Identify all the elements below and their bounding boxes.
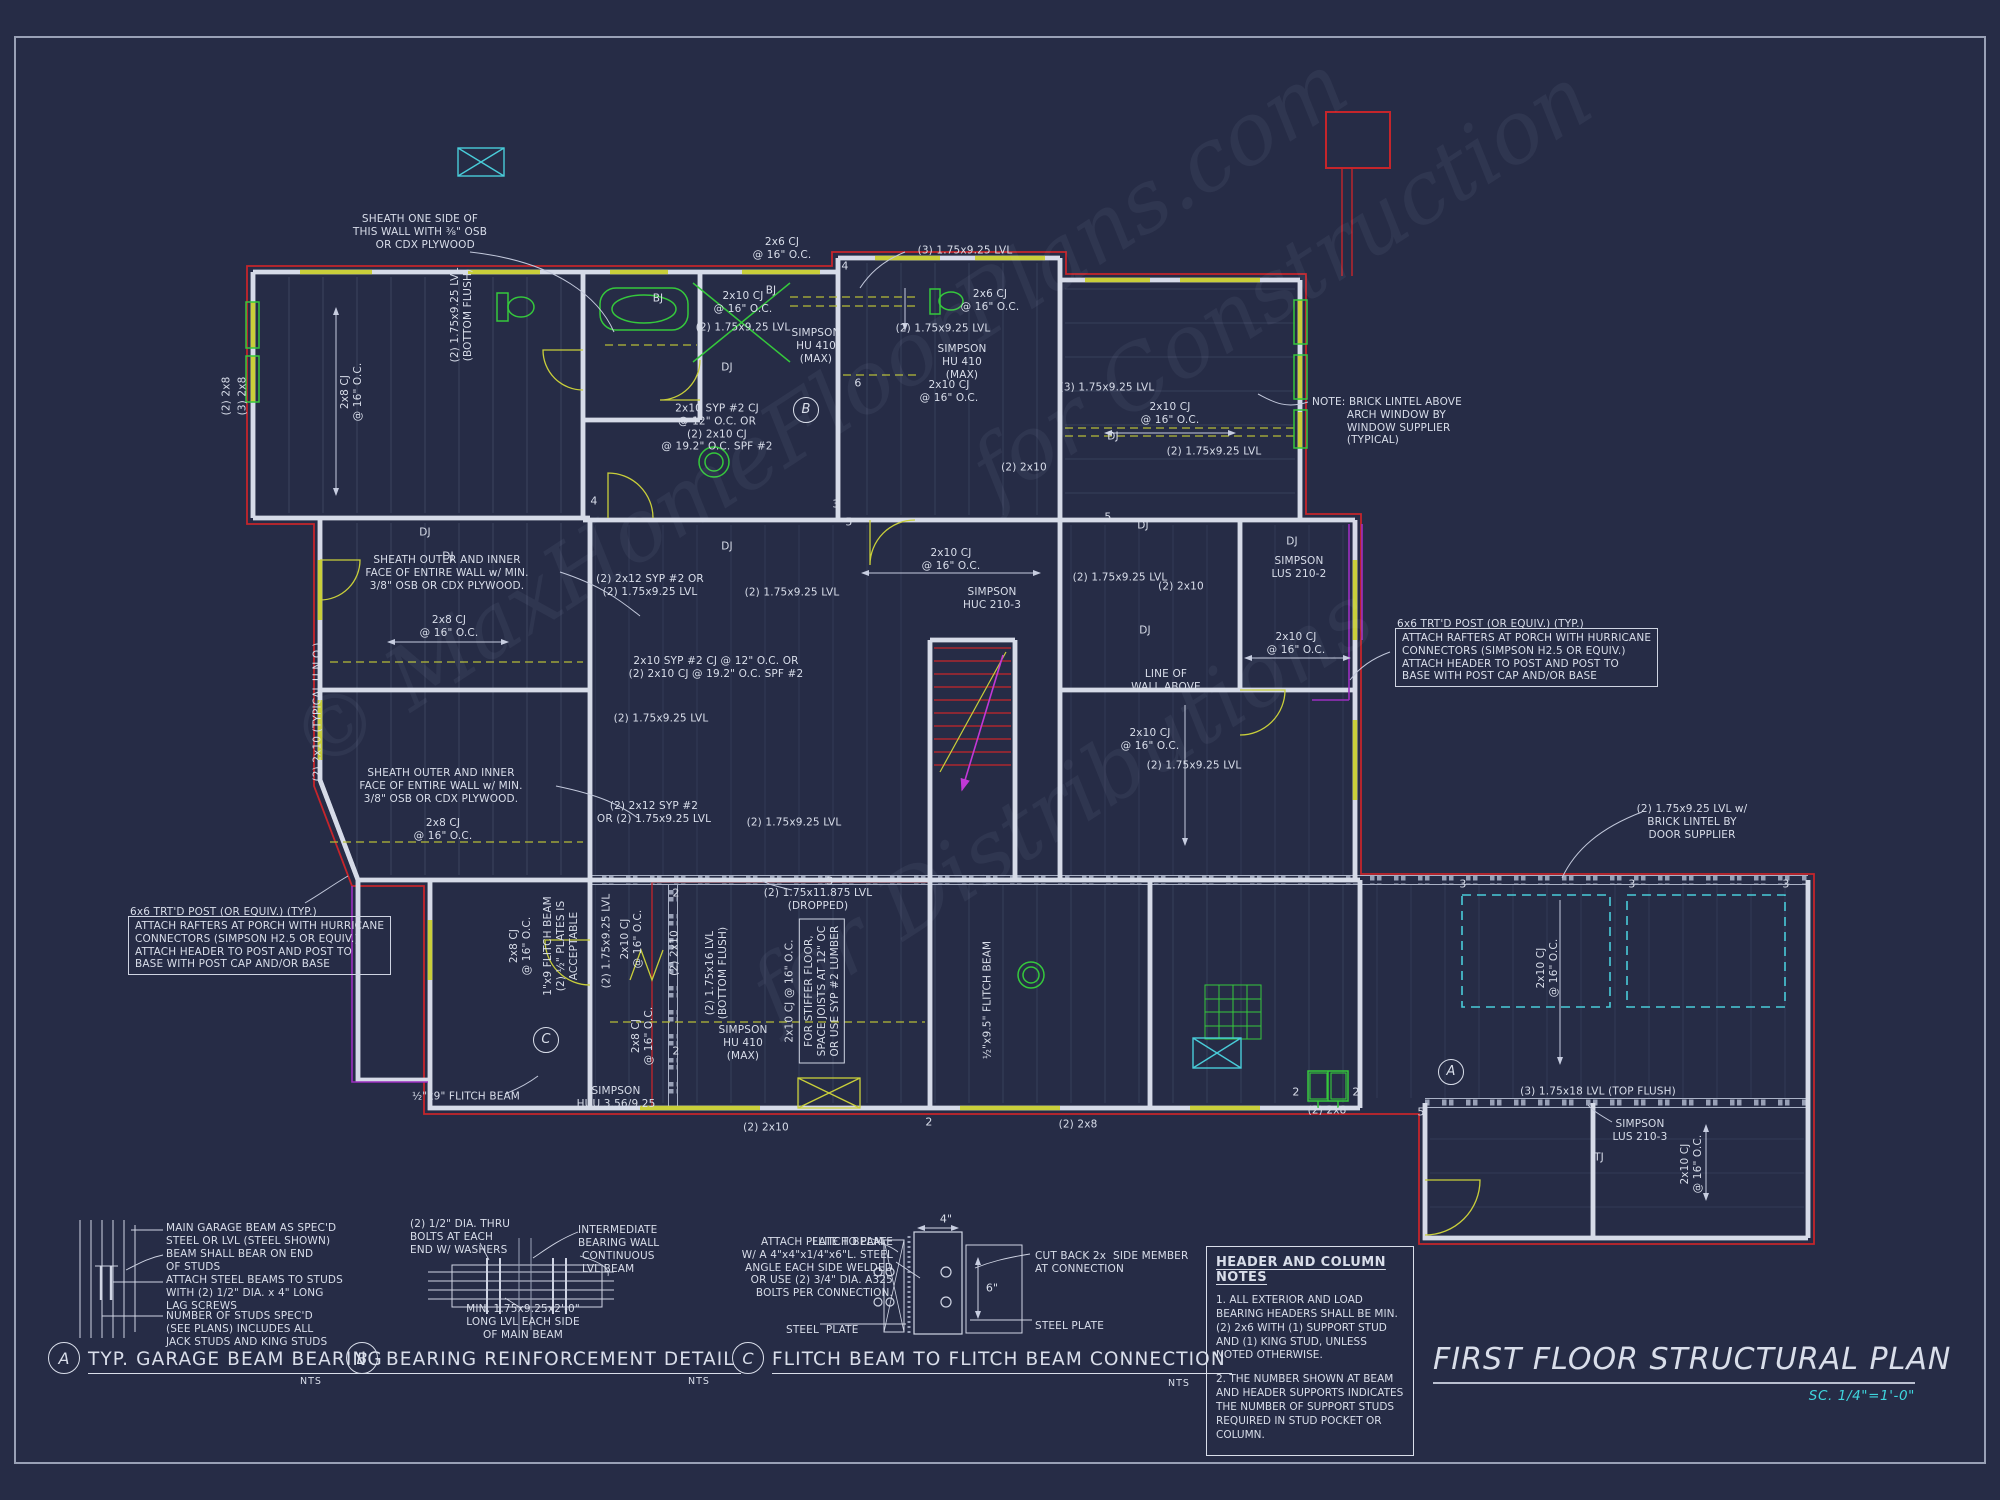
plan-label: DJ: [1286, 536, 1297, 549]
plan-label: ATTACH PLATE TO PLATE W/ A 4"x4"x1/4"x6"…: [742, 1236, 893, 1300]
plan-label: 2: [672, 886, 679, 899]
plan-label: INTERMEDIATE BEARING WALL: [578, 1224, 659, 1250]
plan-label: 2x8 CJ @ 16" O.C.: [508, 917, 534, 976]
plan-label: DJ: [442, 551, 453, 564]
plan-label: (2) 2x10 (TYPICAL U.N.O.): [312, 642, 325, 781]
plan-label: (2) 2x10: [743, 1122, 789, 1135]
plan-label: DJ: [721, 362, 732, 375]
plan-label: ATTACH STEEL BEAMS TO STUDS WITH (2) 1/2…: [166, 1274, 343, 1312]
plan-labels: SHEATH ONE SIDE OF THIS WALL WITH ⅜" OSB…: [0, 0, 2000, 1500]
plan-label: SHEATH OUTER AND INNER FACE OF ENTIRE WA…: [359, 767, 522, 805]
detail-b-marker-icon: B: [346, 1342, 378, 1374]
plan-label: 2x10 CJ @ 16" O.C.: [784, 939, 797, 1042]
plan-label: SIMPSON HU 410 (MAX): [938, 343, 987, 381]
plan-label: STEEL PLATE: [786, 1324, 859, 1337]
detail-a-title-text: TYP. GARAGE BEAM BEARING: [88, 1349, 389, 1374]
plan-label: 5: [1104, 510, 1111, 523]
plan-label: SIMPSON HUU 3.56/9.25: [577, 1085, 656, 1111]
detail-marker: B: [793, 397, 819, 423]
plan-label: (2) 1.75x9.25 LVL (BOTTOM FLUSH): [449, 268, 475, 363]
plan-label: 2x10 CJ @ 16" O.C.: [922, 547, 981, 573]
plan-label: TJ: [1594, 1152, 1604, 1165]
plan-label: (2) 1.75x9.25 LVL: [601, 894, 614, 989]
plan-label: (2) 1.75x9.25 LVL: [745, 587, 840, 600]
plan-label: 5: [845, 515, 852, 528]
note-item: 2. THE NUMBER SHOWN AT BEAM AND HEADER S…: [1216, 1373, 1404, 1442]
plan-label: (2) 1.75x16 LVL (BOTTOM FLUSH): [704, 927, 730, 1020]
plan-label: LINE OF WALL ABOVE: [1131, 668, 1201, 694]
plan-label: 2x10 CJ @ 16" O.C.: [1679, 1135, 1705, 1194]
plan-label: (2) 2x10: [1158, 581, 1204, 594]
plan-label: 4: [590, 494, 597, 507]
header-column-notes: HEADER AND COLUMN NOTES 1. ALL EXTERIOR …: [1206, 1246, 1414, 1456]
plan-label: 4: [841, 259, 848, 272]
plan-label: SIMPSON HUC 210-3: [963, 586, 1021, 612]
plan-label: 3: [1459, 877, 1466, 890]
detail-c-nts: NTS: [1168, 1378, 1190, 1389]
notes-title: HEADER AND COLUMN NOTES: [1216, 1255, 1404, 1285]
plan-label: 2x8 CJ @ 16" O.C.: [339, 363, 365, 422]
plan-label: 3: [1782, 877, 1789, 890]
note-item: 1. ALL EXTERIOR AND LOAD BEARING HEADERS…: [1216, 1294, 1404, 1363]
plan-label: SIMPSON LUS 210-3: [1613, 1118, 1668, 1144]
plan-label: BEAM SHALL BEAR ON END OF STUDS: [166, 1248, 313, 1274]
sheet-scale: SC. 1/4"=1'-0": [1433, 1388, 1915, 1404]
plan-label: 2x6 CJ @ 16" O.C.: [961, 288, 1020, 314]
plan-label: ½"x9" FLITCH BEAM: [412, 1091, 520, 1104]
plan-label: 2x8 CJ @ 16" O.C.: [420, 614, 479, 640]
plan-label: 2: [672, 1044, 679, 1057]
detail-a-nts: NTS: [300, 1376, 322, 1387]
plan-label: DJ: [1107, 431, 1118, 444]
title-block: FIRST FLOOR STRUCTURAL PLAN SC. 1/4"=1'-…: [1433, 1342, 1915, 1404]
plan-label: SIMPSON HU 410 (MAX): [792, 327, 841, 365]
plan-label: DJ: [1137, 520, 1148, 533]
plan-label: (2) 2x10: [1001, 462, 1047, 475]
plan-label: DJ: [419, 527, 430, 540]
plan-label: SIMPSON HU 410 (MAX): [719, 1024, 768, 1062]
plan-label: 3: [832, 497, 839, 510]
plan-label: (2) 2x12 SYP #2 OR (2) 1.75x9.25 LVL: [597, 800, 711, 826]
plan-label: 3: [826, 874, 833, 887]
plan-label: ATTACH RAFTERS AT PORCH WITH HURRICANE C…: [1395, 628, 1658, 687]
detail-marker: A: [1438, 1059, 1464, 1085]
drawing-sheet: © MaxHomeFloorPlans.com for Construction…: [0, 0, 2000, 1500]
detail-b-nts: NTS: [688, 1376, 710, 1387]
plan-label: STEEL PLATE: [1035, 1320, 1104, 1333]
detail-a-marker-icon: A: [48, 1342, 80, 1374]
plan-label: SHEATH ONE SIDE OF THIS WALL WITH ⅜" OSB…: [353, 213, 487, 251]
plan-label: (2) 1.75x9.25 LVL: [1167, 446, 1262, 459]
plan-label: 2x10 SYP #2 CJ @ 12" O.C. OR (2) 2x10 CJ…: [629, 655, 804, 681]
sheet-title: FIRST FLOOR STRUCTURAL PLAN: [1433, 1342, 1915, 1384]
plan-label: (2) 1.75x9.25 LVL: [1147, 760, 1242, 773]
plan-label: CONTINUOUS LVL BEAM: [582, 1250, 655, 1276]
plan-label: DJ: [721, 541, 732, 554]
plan-label: FOR STIFFER FLOOR, SPACE JOISTS AT 12" O…: [799, 919, 845, 1064]
plan-label: 2: [925, 1115, 932, 1128]
plan-label: 2x10 CJ @ 16" O.C.: [619, 910, 645, 969]
plan-label: 1"x9 FLITCH BEAM (2) ½" PLATES IS ACCEPT…: [542, 896, 580, 996]
plan-label: 2x10 CJ @ 16" O.C.: [1267, 631, 1326, 657]
plan-label: SIMPSON LUS 210-2: [1272, 555, 1327, 581]
plan-label: 5: [1417, 1105, 1424, 1118]
plan-label: MIN. 1.75x9.25x2'-0" LONG LVL EACH SIDE …: [466, 1303, 580, 1341]
plan-label: BJ: [653, 293, 664, 306]
plan-label: 2x10 CJ @ 16" O.C.: [1121, 727, 1180, 753]
detail-b-title: B BEARING REINFORCEMENT DETAIL: [346, 1342, 741, 1374]
plan-label: (3) 2x8: [237, 377, 250, 416]
plan-label: (2) 2x10: [669, 930, 682, 976]
detail-a-title: A TYP. GARAGE BEAM BEARING: [48, 1342, 389, 1374]
detail-c-title-text: FLITCH BEAM TO FLITCH BEAM CONNECTION: [772, 1349, 1232, 1374]
detail-c-title: C FLITCH BEAM TO FLITCH BEAM CONNECTION: [732, 1342, 1232, 1374]
plan-label: 2x10 CJ @ 16" O.C.: [714, 290, 773, 316]
plan-label: (2) 1.75x9.25 LVL: [614, 713, 709, 726]
plan-label: CUT BACK 2x SIDE MEMBER AT CONNECTION: [1035, 1250, 1188, 1276]
plan-label: 2x10 CJ @ 16" O.C.: [1141, 401, 1200, 427]
plan-label: DJ: [1139, 625, 1150, 638]
plan-label: (2) 1.75x9.25 LVL: [896, 323, 991, 336]
plan-label: (2) 2x8: [221, 377, 234, 416]
plan-label: ½"x9.5" FLITCH BEAM: [982, 941, 995, 1059]
plan-label: BJ: [766, 285, 777, 298]
plan-label: NOTE: BRICK LINTEL ABOVE ARCH WINDOW BY …: [1312, 396, 1462, 447]
detail-b-title-text: BEARING REINFORCEMENT DETAIL: [386, 1349, 741, 1374]
plan-label: 4": [940, 1212, 952, 1225]
detail-c-marker-icon: C: [732, 1342, 764, 1374]
plan-label: (2) 2x8: [1308, 1105, 1347, 1118]
plan-label: (2) 1.75x9.25 LVL: [1073, 572, 1168, 585]
plan-label: 3: [1628, 877, 1635, 890]
plan-label: MAIN GARAGE BEAM AS SPEC'D STEEL OR LVL …: [166, 1222, 336, 1248]
plan-label: (2) 1.75x9.25 LVL: [747, 817, 842, 830]
plan-label: (2) 1.75x9.25 LVL w/ BRICK LINTEL BY DOO…: [1637, 803, 1748, 841]
plan-label: 2x10 SYP #2 CJ @ 12" O.C. OR (2) 2x10 CJ…: [661, 402, 772, 453]
plan-label: (3) 1.75x18 LVL (TOP FLUSH): [1520, 1086, 1676, 1099]
plan-label: (3) 1.75x9.25 LVL: [1060, 382, 1155, 395]
plan-label: 2x6 CJ @ 16" O.C.: [753, 236, 812, 262]
plan-label: 2: [1292, 1085, 1299, 1098]
plan-label: (2) 1.75x9.25 LVL: [696, 322, 791, 335]
plan-label: (3) 1.75x9.25 LVL: [918, 245, 1013, 258]
plan-label: (2) 2x8: [1059, 1119, 1098, 1132]
plan-label: (2) 1/2" DIA. THRU BOLTS AT EACH END W/ …: [410, 1218, 510, 1256]
plan-label: 2x8 CJ @ 16" O.C.: [630, 1007, 656, 1066]
plan-label: 2: [1352, 1085, 1359, 1098]
plan-label: 2x10 CJ @ 16" O.C.: [1535, 939, 1561, 998]
detail-marker: C: [533, 1027, 559, 1053]
plan-label: (2) 1.75x11.875 LVL (DROPPED): [764, 887, 872, 913]
plan-label: 6": [986, 1281, 998, 1294]
plan-label: 2x10 CJ @ 16" O.C.: [920, 379, 979, 405]
plan-label: ATTACH RAFTERS AT PORCH WITH HURRICANE C…: [128, 916, 391, 975]
plan-label: 2x8 CJ @ 16" O.C.: [414, 817, 473, 843]
plan-label: (2) 2x12 SYP #2 OR (2) 1.75x9.25 LVL: [596, 573, 704, 599]
plan-label: 6: [854, 376, 861, 389]
